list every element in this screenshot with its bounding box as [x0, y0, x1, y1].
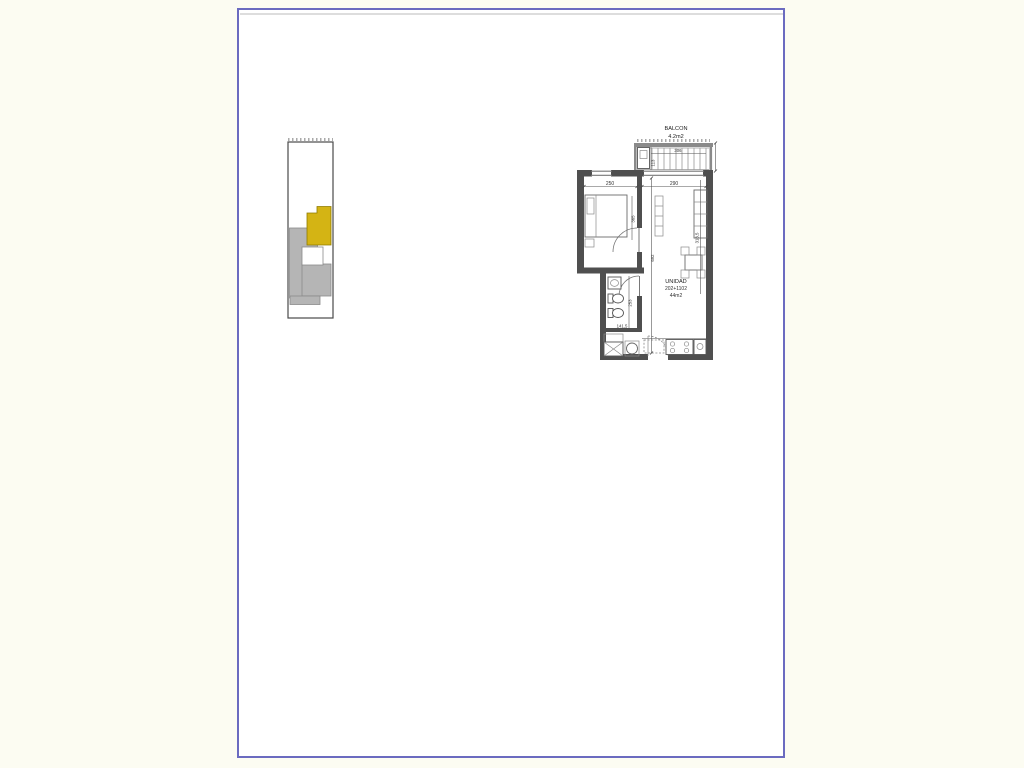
balcony: [634, 141, 717, 173]
unit-floor-plan: BALCON 4.2m2 UNIDAD 202+1102 44m2 250 29…: [577, 126, 717, 360]
bathroom-right-wall: [637, 296, 642, 330]
dim-balcony-width: 306: [674, 148, 682, 153]
bedroom-partition-lower: [637, 252, 642, 268]
bidet: [613, 309, 624, 318]
kitchen-cabinet-dashed: [644, 340, 664, 353]
unit-numbers: 202+1102: [665, 286, 687, 292]
bedroom-door-arc: [613, 228, 637, 252]
bed: [585, 195, 627, 237]
dim-unit-length: 692: [650, 254, 655, 262]
dim-bath-depth: 253: [628, 299, 633, 307]
dim-bath-width: 141,5: [617, 324, 628, 329]
dining-chair: [697, 247, 705, 255]
bedroom-partition-upper: [637, 176, 642, 228]
nightstand: [585, 239, 594, 247]
balcony-label: BALCON: [664, 126, 687, 132]
bathroom-bottom-wall: [604, 328, 642, 332]
bathroom-fixtures: [608, 277, 624, 318]
walls: [577, 170, 713, 360]
key-plan: [288, 140, 333, 319]
dim-bedroom-width: 250: [606, 181, 615, 187]
bed-pillow: [587, 198, 594, 214]
top-wall-left: [577, 170, 592, 177]
keyplan-mass-right: [302, 264, 331, 296]
unit-area-label: 44m2: [670, 293, 683, 299]
plan-drawing: BALCON 4.2m2 UNIDAD 202+1102 44m2 250 29…: [0, 0, 1024, 768]
dining-chair: [681, 247, 689, 255]
listing-floorplan-image: BALCON 4.2m2 UNIDAD 202+1102 44m2 250 29…: [0, 0, 1024, 768]
keyplan-notch: [302, 247, 323, 265]
top-wall-mid: [611, 170, 644, 177]
balcony-left-rail: [634, 143, 637, 171]
dim-bedroom-depth: 365: [631, 215, 636, 223]
dining-table: [685, 255, 702, 270]
washing-machine: [627, 343, 638, 354]
balcony-top-rail: [634, 143, 713, 147]
openings: [591, 171, 704, 175]
bedroom-left-wall: [577, 170, 584, 273]
dining-chair: [697, 270, 705, 278]
keyplan-mass-bottom: [290, 296, 320, 305]
dim-living-length: 318,5: [695, 232, 700, 243]
stove: [666, 340, 693, 355]
kitchen-sink: [694, 340, 706, 355]
bedroom-furniture: [585, 195, 627, 247]
dining-chair: [681, 270, 689, 278]
bedroom-bottom-wall: [577, 268, 644, 274]
doors: [613, 228, 668, 356]
balcony-right-rail: [710, 143, 713, 171]
toilet: [613, 294, 624, 303]
dim-balcony-depth: 113: [651, 159, 656, 166]
balcony-area-label: 4.2m2: [668, 134, 684, 140]
kitchen-fixtures: [604, 334, 706, 356]
kitchen-counter-upper: [604, 334, 623, 342]
dim-living-width: 290: [670, 181, 679, 187]
bathroom-sink: [608, 277, 621, 289]
unit-label: UNIDAD: [665, 279, 686, 285]
